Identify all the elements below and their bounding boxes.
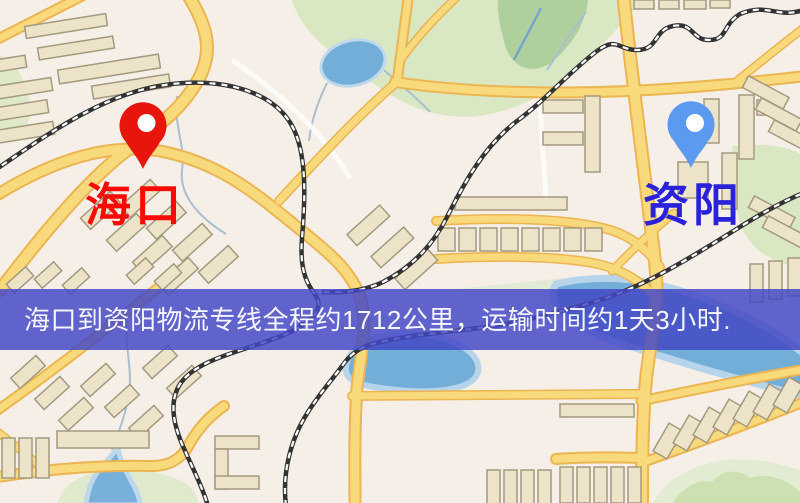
map-canvas[interactable]: 海口 资阳 海口到资阳物流专线全程约1712公里，运输时间约1天3小时. bbox=[0, 0, 800, 503]
destination-label: 资阳 bbox=[643, 180, 743, 231]
origin-label: 海口 bbox=[85, 180, 185, 231]
route-info-text: 海口到资阳物流专线全程约1712公里，运输时间约1天3小时. bbox=[24, 305, 731, 335]
route-info-banner: 海口到资阳物流专线全程约1712公里，运输时间约1天3小时. bbox=[0, 289, 800, 350]
